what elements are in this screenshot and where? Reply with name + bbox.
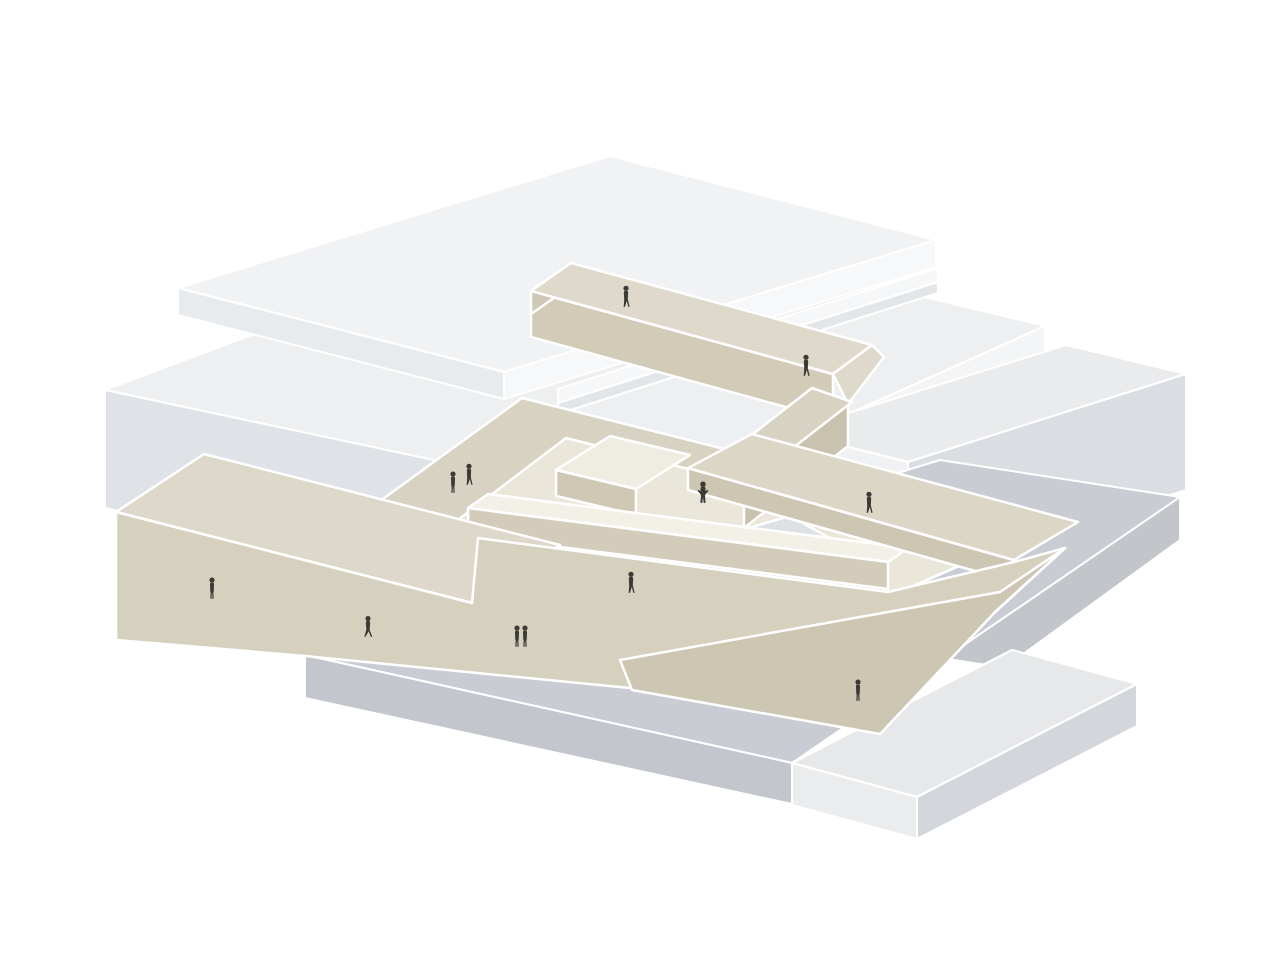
axonometric-diagram [0,0,1280,960]
diagram-canvas [0,0,1280,960]
